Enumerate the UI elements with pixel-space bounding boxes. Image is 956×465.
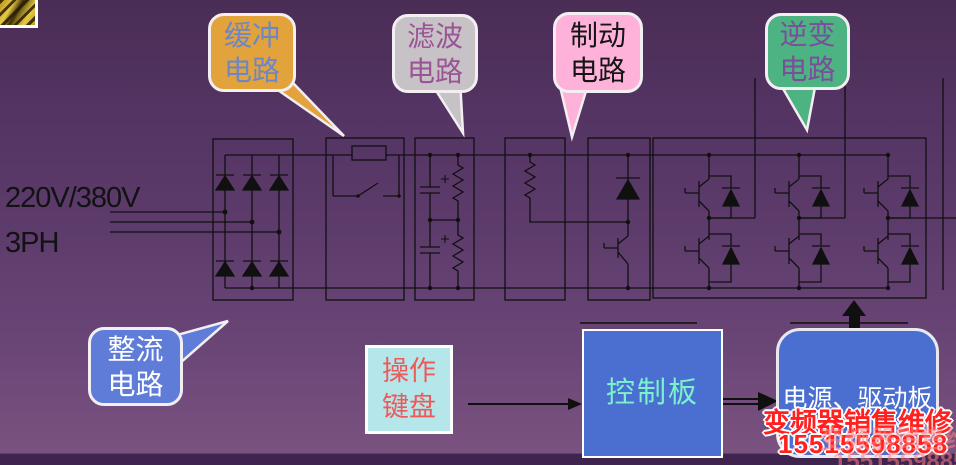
brake-chopper-igbt-icon: [604, 155, 640, 288]
callout-label: 电路: [407, 54, 463, 89]
callout-label: 整流: [107, 332, 163, 367]
callout-label: 电路: [107, 367, 163, 402]
inverter-box: [653, 138, 926, 298]
rectifier-bridge: [216, 155, 288, 288]
control-board-label: 控制板: [606, 375, 699, 413]
callout-label: 缓冲: [224, 18, 280, 53]
filter-capacitor-icon: [420, 155, 449, 288]
diode-icon: [216, 175, 288, 276]
junction-dots: [223, 153, 891, 290]
circuit-board-photo: [0, 0, 38, 28]
callout-label: 滤波: [407, 19, 463, 54]
keypad-to-control-arrow: [468, 398, 582, 410]
watermark-phone-ghost: 15515598858: [833, 448, 956, 465]
buffer-box: [326, 138, 404, 300]
callout-label: 电路: [570, 53, 626, 88]
voltage-line: 220V/380V: [5, 176, 140, 221]
callout-brake-circuit: 制动 电路: [553, 12, 643, 93]
inverter-leg-icon: [685, 155, 740, 288]
callout-inverter-circuit: 逆变 电路: [765, 13, 850, 90]
bypass-switch-icon: [333, 155, 399, 196]
rectifier-box: [213, 139, 293, 300]
callout-label: 电路: [224, 53, 280, 88]
callout-buffer-circuit: 缓冲 电路: [208, 13, 296, 92]
callout-label: 制动: [570, 18, 626, 53]
brake-resistor-box: [505, 138, 565, 300]
inverter-output-lines: [709, 78, 956, 290]
brake-chopper-box: [588, 138, 650, 300]
buffer-resistor-icon: [352, 146, 386, 160]
keypad-label: 键盘: [382, 390, 436, 425]
inverter-bridge: [685, 155, 919, 288]
callout-label: 逆变: [779, 17, 835, 52]
keypad-block: 操作 键盘: [365, 345, 453, 434]
phase-line: 3PH: [5, 221, 140, 266]
control-board-block: 控制板: [582, 329, 723, 458]
input-voltage-label: 220V/380V 3PH: [5, 176, 140, 266]
filter-resistor-icon: [430, 155, 463, 288]
slide: 220V/380V 3PH 缓冲 电路 滤波 电路 制动 电路 逆变 电路 整流…: [0, 0, 956, 465]
keypad-label: 操作: [382, 354, 436, 389]
brake-resistor-icon: [525, 155, 628, 222]
callout-filter-circuit: 滤波 电路: [392, 14, 478, 93]
callout-label: 电路: [779, 52, 835, 87]
filter-box: [415, 138, 474, 300]
callout-rectifier-circuit: 整流 电路: [88, 327, 183, 406]
